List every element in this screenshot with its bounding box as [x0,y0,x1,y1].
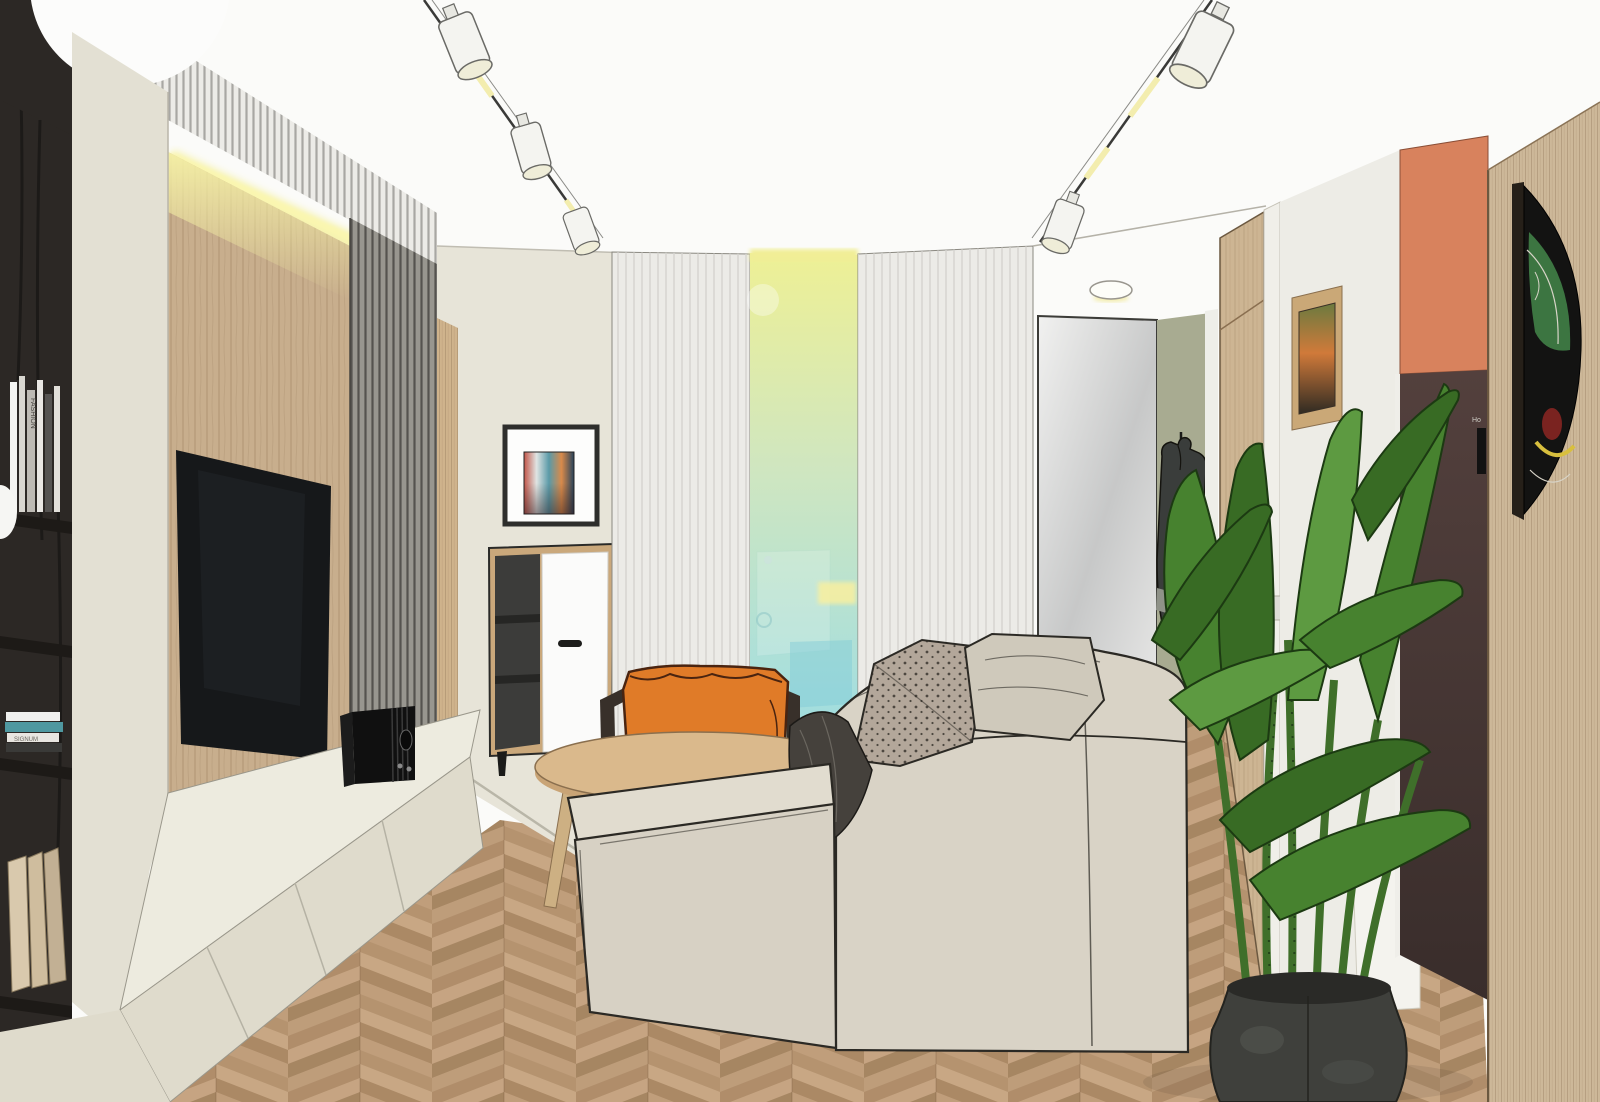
tv-screen-reflection [198,470,305,706]
corridor-wall-light [747,284,779,316]
cabinet-door [542,552,608,752]
fridge-dispenser [1477,428,1486,474]
corridor-led-glow [818,582,856,604]
cabinet-open-shelves [495,554,540,750]
cabinet-handle [558,640,582,647]
books-leaning [8,848,66,992]
books-stacked: SIGNUM [5,712,63,752]
coral-wall [1400,136,1488,374]
ceiling-disc-light [1090,281,1132,302]
mirror [1038,316,1157,688]
scene-canvas: FASHION SIGNUM [0,0,1600,1102]
radio-dial [400,730,412,750]
book-spine-text: FASHION [29,398,36,429]
framed-picture-right [1292,286,1342,430]
tv [176,450,331,760]
chaise-front [575,804,836,1048]
framed-artwork-left [505,427,597,524]
bookshelf: FASHION SIGNUM [0,0,72,1102]
fridge-brand-text: Ho [1472,417,1481,424]
beige-pillow [965,634,1104,740]
plant-pot [1210,972,1406,1102]
radio-speaker [340,706,415,787]
interior-rendering: FASHION SIGNUM [0,0,1600,1102]
corridor-top-glow [750,249,858,261]
book-stack-text: SIGNUM [14,737,38,743]
